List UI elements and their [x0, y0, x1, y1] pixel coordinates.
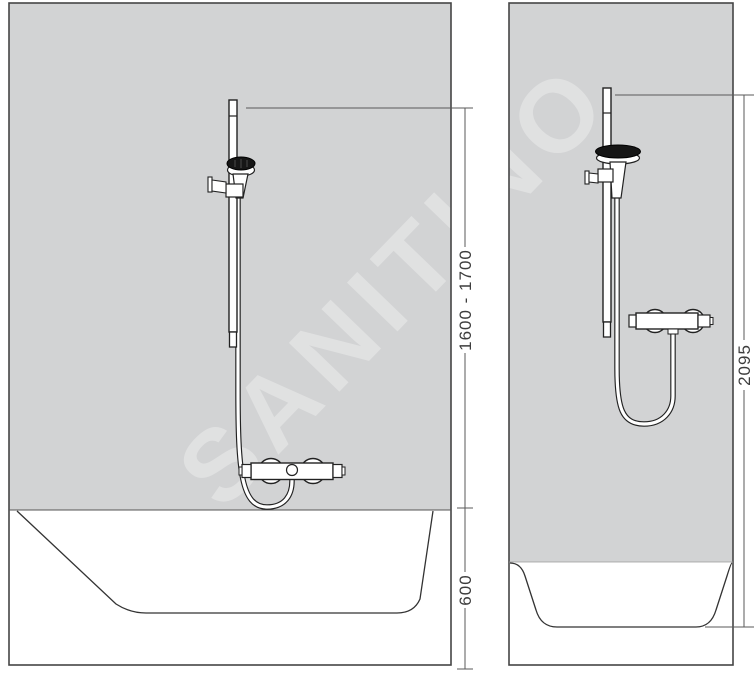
dimension-label-rail-height: 1600 - 1700	[456, 249, 475, 351]
bathtub-front	[17, 511, 433, 613]
dimension-label-tub-height: 600	[456, 574, 475, 605]
installation-diagram: SANITINO	[0, 0, 754, 675]
diverter-button	[287, 465, 298, 476]
holder-lever-front	[208, 177, 212, 192]
rail-slider-side	[598, 169, 613, 182]
shower-rail-front	[229, 100, 237, 347]
installation-drawing-canvas: SANITINO	[0, 0, 754, 675]
bathtub-side	[510, 563, 732, 627]
shower-rail-side	[603, 88, 611, 337]
dimension-label-total-height: 2095	[735, 344, 754, 386]
rail-slider-front	[226, 184, 243, 197]
holder-lever-side	[585, 171, 589, 184]
shower-head-face-side-icon	[596, 145, 641, 158]
